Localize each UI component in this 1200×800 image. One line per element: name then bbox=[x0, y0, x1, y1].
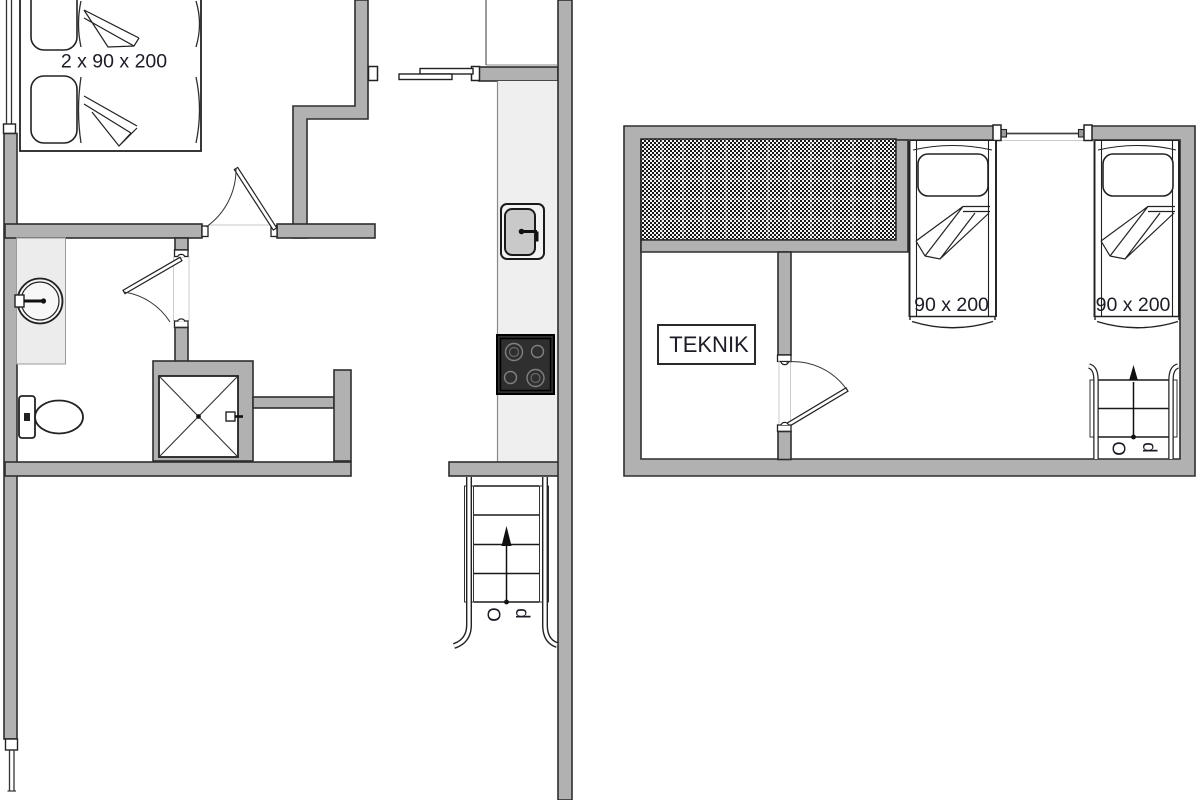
svg-text:90 x 200: 90 x 200 bbox=[1096, 294, 1171, 316]
svg-text:p: p bbox=[511, 608, 532, 619]
svg-text:p: p bbox=[1138, 442, 1159, 453]
svg-text:O: O bbox=[1109, 441, 1130, 455]
svg-text:TEKNIK: TEKNIK bbox=[669, 332, 749, 357]
svg-text:O: O bbox=[484, 607, 505, 621]
svg-text:90 x 200: 90 x 200 bbox=[914, 294, 989, 316]
svg-text:2 x 90 x 200: 2 x 90 x 200 bbox=[61, 51, 167, 73]
